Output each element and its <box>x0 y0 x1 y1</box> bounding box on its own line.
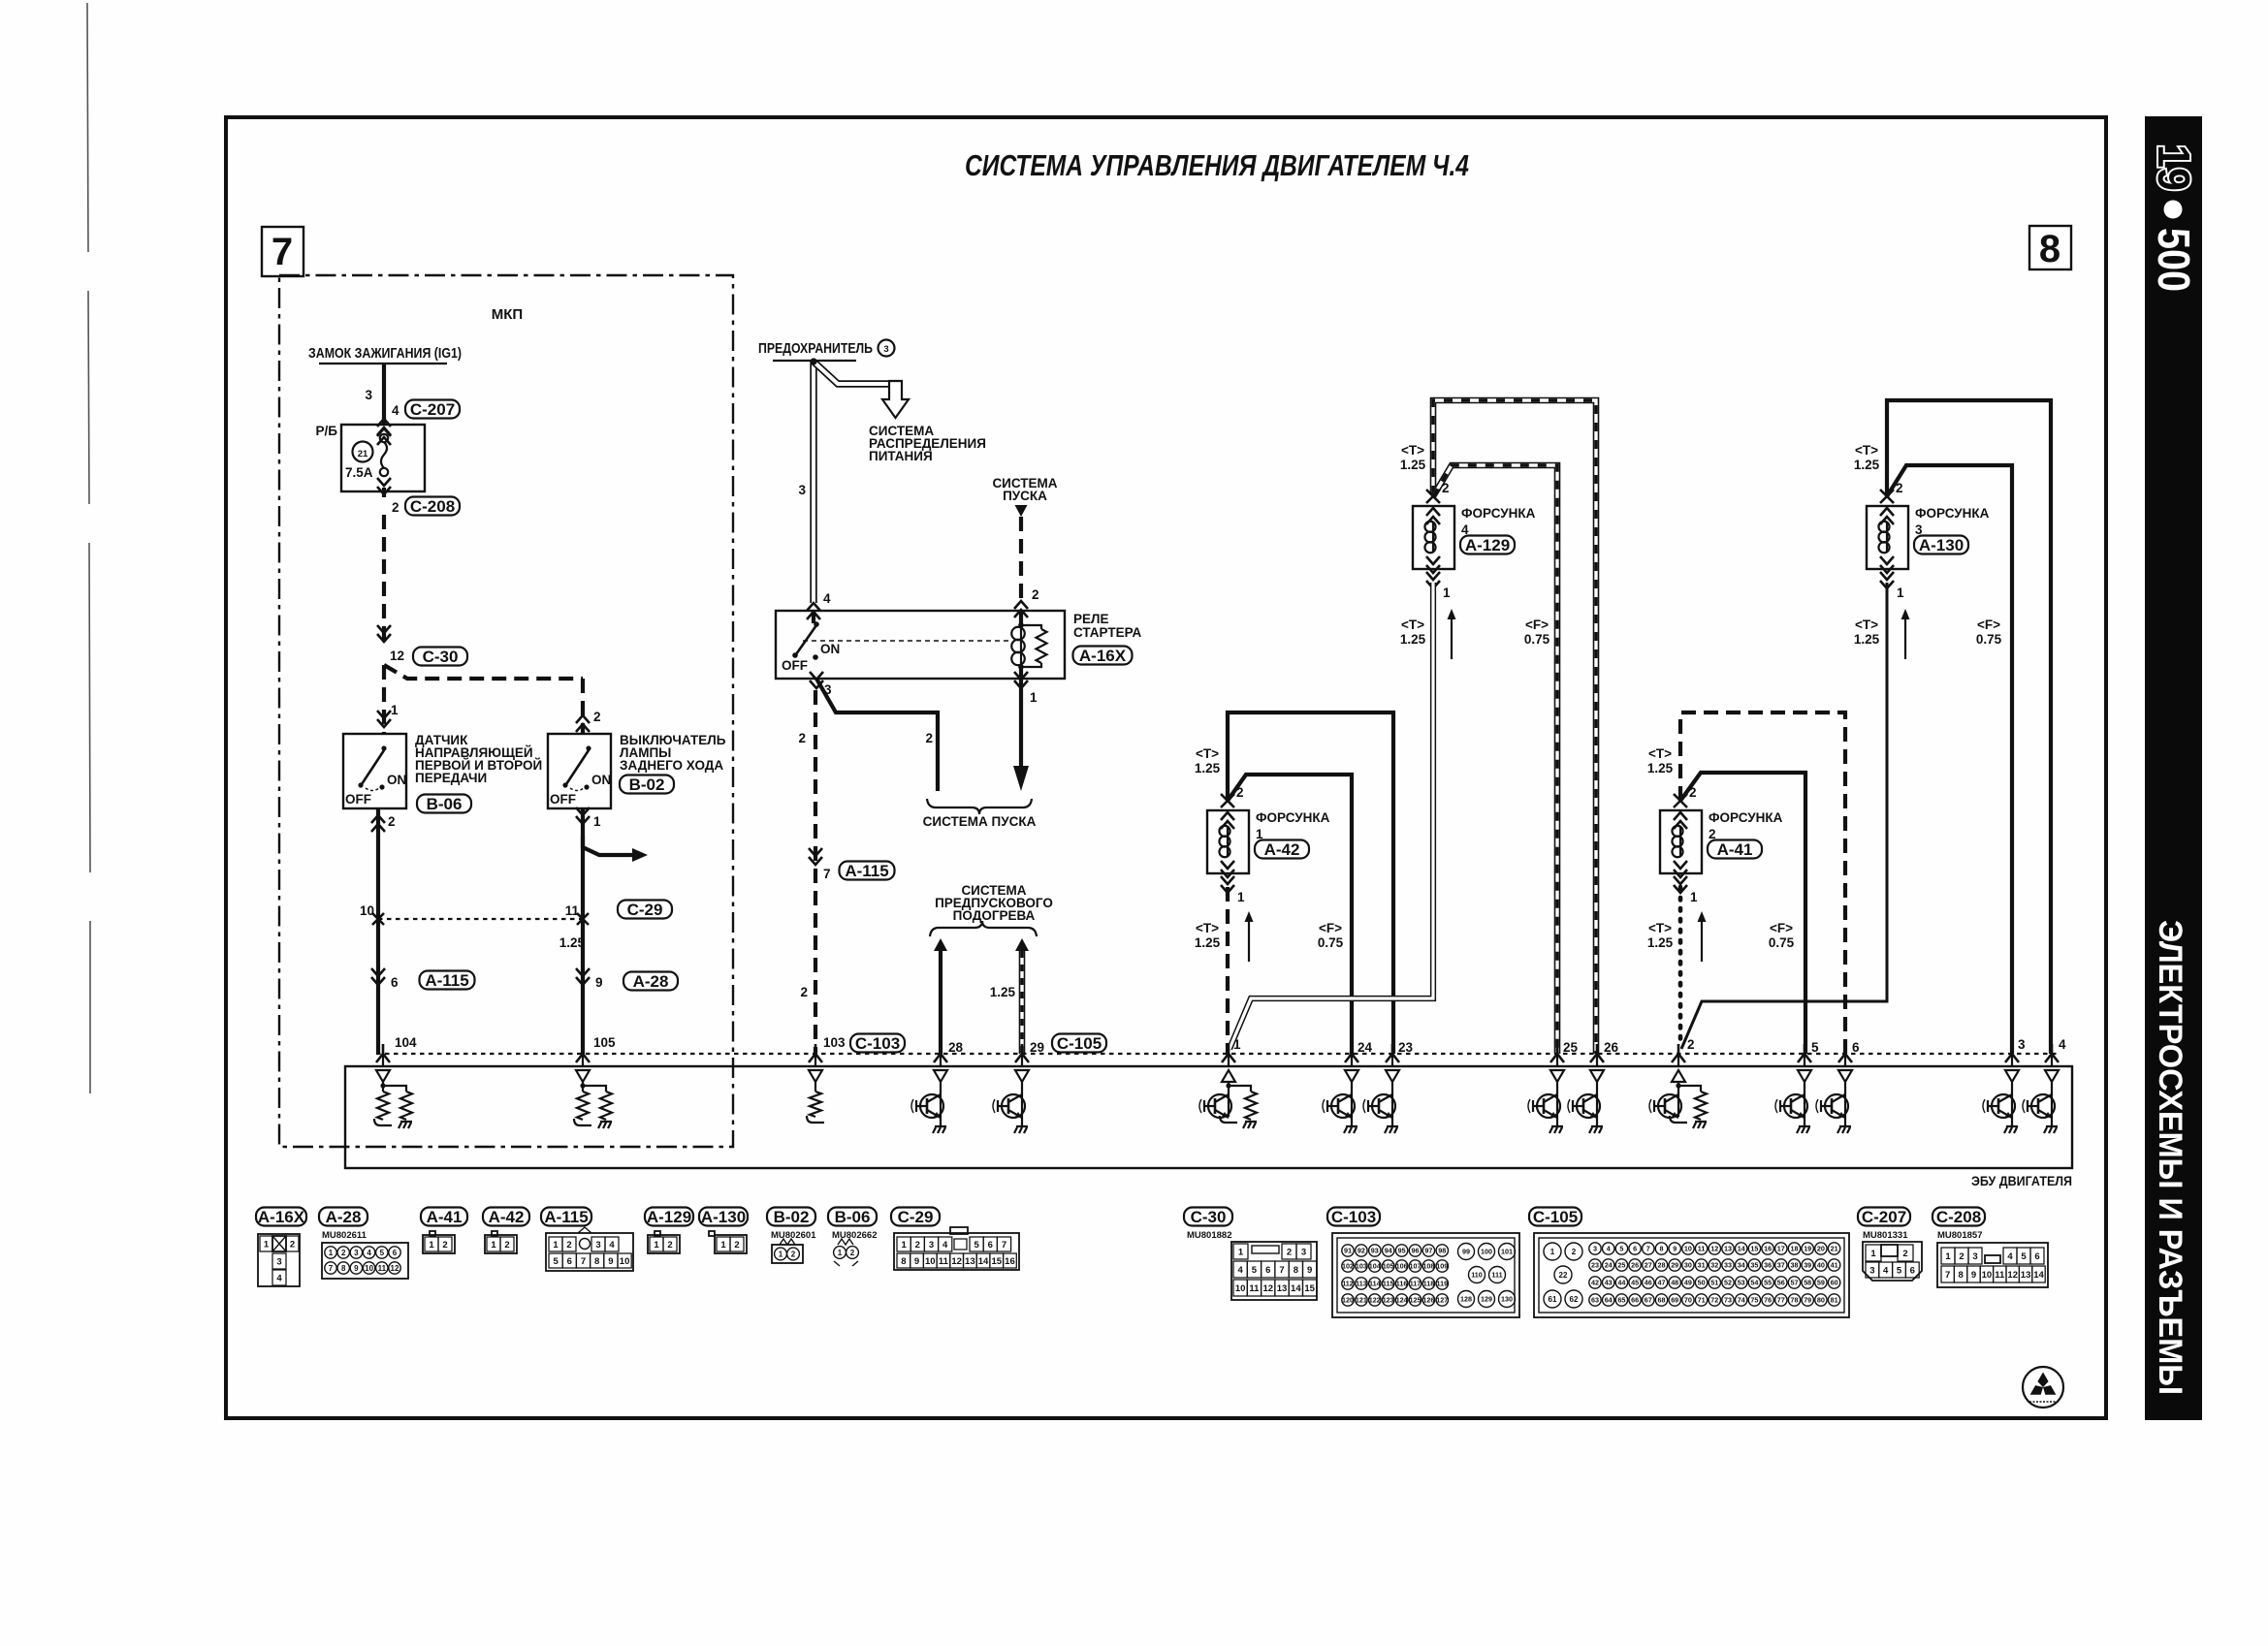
svg-text:C-105: C-105 <box>1057 1034 1102 1053</box>
svg-text:5: 5 <box>2021 1251 2027 1262</box>
svg-text:65: 65 <box>1617 1296 1625 1305</box>
svg-text:75: 75 <box>1750 1296 1758 1305</box>
svg-text:10: 10 <box>365 1264 373 1273</box>
svg-text:A-42: A-42 <box>1264 840 1300 859</box>
svg-text:C-103: C-103 <box>1331 1208 1376 1226</box>
svg-text:98: 98 <box>1438 1247 1446 1255</box>
svg-text:C-207: C-207 <box>410 400 455 419</box>
svg-text:МКП: МКП <box>492 306 523 323</box>
svg-text:43: 43 <box>1605 1279 1613 1287</box>
svg-text:A-115: A-115 <box>425 971 468 990</box>
svg-text:9: 9 <box>354 1264 359 1273</box>
svg-text:1: 1 <box>1233 1037 1241 1052</box>
svg-text:2: 2 <box>341 1249 346 1257</box>
svg-text:8: 8 <box>1958 1270 1963 1281</box>
svg-text:7: 7 <box>1646 1245 1650 1253</box>
svg-text:ЭБУ ДВИГАТЕЛЯ: ЭБУ ДВИГАТЕЛЯ <box>1971 1174 2072 1188</box>
svg-text:125: 125 <box>1410 1296 1421 1305</box>
svg-text:2: 2 <box>915 1240 920 1250</box>
svg-text:1.25: 1.25 <box>1400 632 1426 647</box>
svg-text:29: 29 <box>1030 1040 1044 1055</box>
svg-text:103: 103 <box>823 1035 846 1050</box>
svg-text:6: 6 <box>1910 1266 1915 1277</box>
svg-text:32: 32 <box>1710 1261 1718 1270</box>
svg-text:A-130: A-130 <box>701 1208 746 1226</box>
svg-text:64: 64 <box>1605 1296 1613 1305</box>
svg-text:4: 4 <box>2059 1037 2066 1052</box>
svg-text:29: 29 <box>1671 1261 1678 1270</box>
svg-text:7: 7 <box>581 1256 586 1267</box>
svg-text:21: 21 <box>358 449 368 459</box>
svg-text:ЗАДНЕГО ХОДА: ЗАДНЕГО ХОДА <box>620 758 723 773</box>
svg-text:A-115: A-115 <box>845 862 888 880</box>
svg-text:12: 12 <box>1710 1245 1718 1253</box>
svg-text:25: 25 <box>1617 1261 1625 1270</box>
svg-text:123: 123 <box>1383 1296 1394 1305</box>
svg-text:ON: ON <box>387 773 406 787</box>
svg-text:117: 117 <box>1410 1280 1421 1288</box>
svg-text:49: 49 <box>1684 1279 1692 1287</box>
svg-text:81: 81 <box>1831 1296 1838 1305</box>
svg-text:109: 109 <box>1436 1262 1448 1271</box>
svg-text:6: 6 <box>393 1249 398 1257</box>
svg-text:15: 15 <box>1304 1283 1315 1294</box>
svg-text:34: 34 <box>1738 1261 1745 1270</box>
svg-text:C-208: C-208 <box>410 497 455 516</box>
svg-text:7: 7 <box>823 867 831 881</box>
svg-text:2: 2 <box>1689 785 1697 800</box>
svg-text:6: 6 <box>1265 1265 1270 1276</box>
svg-text:1: 1 <box>720 1240 726 1250</box>
svg-text:62: 62 <box>1570 1295 1579 1304</box>
svg-text:4: 4 <box>942 1240 948 1250</box>
svg-text:27: 27 <box>1645 1261 1652 1270</box>
svg-text:ON: ON <box>591 773 611 787</box>
svg-text:7: 7 <box>1945 1270 1950 1281</box>
svg-text:1: 1 <box>779 1250 783 1258</box>
svg-text:500: 500 <box>2149 228 2199 292</box>
svg-text:<F>: <F> <box>1977 617 2000 632</box>
svg-text:<T>: <T> <box>1196 746 1219 761</box>
svg-text:52: 52 <box>1724 1279 1732 1287</box>
svg-text:7: 7 <box>329 1264 334 1273</box>
svg-text:2: 2 <box>850 1249 855 1257</box>
svg-text:14: 14 <box>1291 1283 1301 1294</box>
svg-text:B-02: B-02 <box>774 1208 810 1226</box>
svg-text:9: 9 <box>608 1256 613 1267</box>
svg-text:11: 11 <box>1249 1283 1260 1294</box>
svg-text:120: 120 <box>1342 1296 1354 1305</box>
svg-text:10: 10 <box>1684 1245 1692 1253</box>
svg-text:1: 1 <box>838 1249 843 1257</box>
svg-text:113: 113 <box>1356 1280 1367 1288</box>
svg-text:<T>: <T> <box>1648 921 1672 935</box>
svg-text:B-06: B-06 <box>427 795 463 813</box>
svg-text:13: 13 <box>1724 1245 1732 1253</box>
svg-text:1.25: 1.25 <box>1854 632 1880 647</box>
svg-text:107: 107 <box>1410 1262 1421 1271</box>
svg-text:24: 24 <box>1358 1040 1373 1055</box>
svg-text:100: 100 <box>1481 1248 1492 1256</box>
svg-text:33: 33 <box>1724 1261 1732 1270</box>
svg-text:1: 1 <box>1870 1249 1876 1259</box>
svg-text:24: 24 <box>1605 1261 1613 1270</box>
svg-text:СИСТЕМА ПУСКА: СИСТЕМА ПУСКА <box>923 814 1037 829</box>
svg-text:71: 71 <box>1698 1296 1706 1305</box>
svg-text:B-02: B-02 <box>629 776 665 794</box>
svg-text:76: 76 <box>1764 1296 1772 1305</box>
svg-text:2: 2 <box>798 731 806 745</box>
svg-text:10: 10 <box>360 903 374 918</box>
svg-text:119: 119 <box>1436 1280 1448 1288</box>
svg-text:104: 104 <box>395 1035 417 1050</box>
svg-text:7: 7 <box>1002 1240 1006 1250</box>
svg-text:5: 5 <box>974 1240 979 1250</box>
svg-text:28: 28 <box>948 1040 964 1055</box>
svg-text:23: 23 <box>1591 1261 1599 1270</box>
svg-text:<T>: <T> <box>1196 921 1219 935</box>
svg-text:106: 106 <box>1396 1262 1408 1271</box>
svg-text:68: 68 <box>1658 1296 1666 1305</box>
svg-text:C-207: C-207 <box>1862 1208 1906 1226</box>
svg-text:1: 1 <box>391 703 399 717</box>
svg-text:1: 1 <box>901 1240 907 1250</box>
svg-text:60: 60 <box>1831 1279 1838 1287</box>
svg-text:10: 10 <box>1235 1283 1246 1294</box>
svg-text:35: 35 <box>1750 1261 1758 1270</box>
svg-text:A-16X: A-16X <box>1079 647 1127 665</box>
svg-text:110: 110 <box>1471 1271 1483 1280</box>
svg-text:72: 72 <box>1710 1296 1718 1305</box>
svg-text:13: 13 <box>2021 1270 2031 1281</box>
svg-text:54: 54 <box>1750 1279 1758 1287</box>
svg-text:5: 5 <box>1811 1040 1819 1055</box>
svg-text:2: 2 <box>1442 481 1450 495</box>
svg-text:59: 59 <box>1817 1279 1825 1287</box>
svg-text:19: 19 <box>2149 144 2199 191</box>
svg-text:111: 111 <box>1491 1271 1502 1280</box>
svg-text:C-105: C-105 <box>1533 1208 1578 1226</box>
svg-text:4: 4 <box>823 591 831 606</box>
svg-text:102: 102 <box>1342 1262 1354 1271</box>
svg-text:MU801857: MU801857 <box>1937 1230 1982 1241</box>
svg-text:2: 2 <box>1032 587 1039 602</box>
svg-text:50: 50 <box>1698 1279 1706 1287</box>
svg-text:4: 4 <box>2007 1251 2013 1262</box>
svg-text:13: 13 <box>1277 1283 1288 1294</box>
svg-text:2: 2 <box>667 1240 672 1250</box>
svg-text:26: 26 <box>1631 1261 1639 1270</box>
svg-text:104: 104 <box>1369 1262 1381 1271</box>
svg-text:2: 2 <box>1287 1248 1292 1258</box>
svg-text:6: 6 <box>1852 1040 1860 1055</box>
svg-text:ФОРСУНКА: ФОРСУНКА <box>1461 506 1536 521</box>
svg-text:126: 126 <box>1422 1296 1434 1305</box>
svg-text:12: 12 <box>2007 1270 2018 1281</box>
svg-text:1: 1 <box>1550 1248 1555 1256</box>
svg-text:130: 130 <box>1501 1295 1513 1304</box>
svg-text:93: 93 <box>1371 1247 1379 1255</box>
svg-text:6: 6 <box>567 1256 572 1267</box>
svg-text:14: 14 <box>2033 1270 2044 1281</box>
svg-text:2: 2 <box>1902 1249 1907 1259</box>
svg-text:63: 63 <box>1591 1296 1599 1305</box>
svg-text:16: 16 <box>1764 1245 1772 1253</box>
svg-text:1: 1 <box>1945 1251 1951 1262</box>
svg-text:8: 8 <box>341 1264 346 1273</box>
svg-text:4: 4 <box>1238 1265 1244 1276</box>
svg-text:4: 4 <box>1607 1245 1611 1253</box>
svg-text:1: 1 <box>1897 586 1904 600</box>
svg-text:B-06: B-06 <box>835 1208 871 1226</box>
svg-text:26: 26 <box>1604 1040 1619 1055</box>
svg-text:127: 127 <box>1436 1296 1448 1305</box>
svg-text:OFF: OFF <box>550 792 576 807</box>
svg-text:67: 67 <box>1645 1296 1652 1305</box>
svg-text:73: 73 <box>1724 1296 1732 1305</box>
svg-text:31: 31 <box>1698 1261 1706 1270</box>
svg-text:23: 23 <box>1398 1040 1414 1055</box>
svg-text:2: 2 <box>1236 785 1244 800</box>
svg-text:91: 91 <box>1344 1247 1352 1255</box>
svg-text:3: 3 <box>1972 1251 1977 1262</box>
svg-text:A-129: A-129 <box>647 1208 691 1226</box>
svg-text:1.25: 1.25 <box>1195 935 1221 950</box>
svg-text:7: 7 <box>272 231 293 273</box>
svg-text:48: 48 <box>1671 1279 1678 1287</box>
svg-text:2: 2 <box>1896 481 1903 495</box>
svg-text:ПИТАНИЯ: ПИТАНИЯ <box>869 449 933 463</box>
svg-text:1: 1 <box>429 1240 434 1250</box>
svg-text:2: 2 <box>734 1240 739 1250</box>
svg-text:42: 42 <box>1591 1279 1599 1287</box>
svg-text:3: 3 <box>1593 1245 1597 1253</box>
svg-text:45: 45 <box>1631 1279 1639 1287</box>
svg-text:14: 14 <box>978 1256 989 1267</box>
svg-text:1.25: 1.25 <box>1400 458 1426 472</box>
svg-text:MU802611: MU802611 <box>322 1230 367 1241</box>
svg-text:30: 30 <box>1684 1261 1692 1270</box>
svg-text:9: 9 <box>1673 1245 1677 1253</box>
svg-text:ЭЛЕКТРОСХЕМЫ И РАЗЪЕМЫ: ЭЛЕКТРОСХЕМЫ И РАЗЪЕМЫ <box>2152 920 2188 1395</box>
svg-text:ФОРСУНКА: ФОРСУНКА <box>1915 506 1990 521</box>
svg-text:12: 12 <box>390 649 404 663</box>
svg-text:A-129: A-129 <box>1465 536 1510 554</box>
svg-text:1: 1 <box>1443 586 1451 600</box>
svg-text:5: 5 <box>380 1249 385 1257</box>
svg-text:3: 3 <box>883 344 888 355</box>
svg-text:ФОРСУНКА: ФОРСУНКА <box>1709 810 1783 825</box>
svg-text:38: 38 <box>1791 1261 1799 1270</box>
svg-text:3: 3 <box>929 1240 934 1250</box>
svg-text:79: 79 <box>1804 1296 1811 1305</box>
svg-text:3: 3 <box>354 1249 359 1257</box>
svg-text:80: 80 <box>1817 1296 1825 1305</box>
svg-text:51: 51 <box>1710 1279 1718 1287</box>
svg-text:3: 3 <box>798 483 806 497</box>
svg-text:95: 95 <box>1398 1247 1406 1255</box>
svg-text:A-16X: A-16X <box>258 1208 305 1226</box>
svg-text:57: 57 <box>1791 1279 1799 1287</box>
svg-text:2: 2 <box>800 985 808 999</box>
svg-text:<F>: <F> <box>1319 921 1342 935</box>
svg-text:C-29: C-29 <box>898 1208 934 1226</box>
svg-text:СИСТЕМА УПРАВЛЕНИЯ ДВИГАТЕЛЕМ: СИСТЕМА УПРАВЛЕНИЯ ДВИГАТЕЛЕМ Ч.4 <box>965 148 1469 182</box>
svg-text:A-28: A-28 <box>326 1208 362 1226</box>
svg-text:61: 61 <box>1549 1295 1557 1304</box>
svg-text:28: 28 <box>1658 1261 1666 1270</box>
svg-text:11: 11 <box>939 1256 949 1267</box>
svg-text:A-41: A-41 <box>1717 840 1753 859</box>
svg-text:0.75: 0.75 <box>1524 632 1550 647</box>
svg-text:СТАРТЕРА: СТАРТЕРА <box>1073 625 1141 640</box>
svg-text:6: 6 <box>988 1240 993 1250</box>
svg-text:ФОРСУНКА: ФОРСУНКА <box>1256 810 1330 825</box>
svg-text:10: 10 <box>925 1256 936 1267</box>
svg-text:37: 37 <box>1777 1261 1785 1270</box>
svg-text:6: 6 <box>2034 1251 2039 1262</box>
svg-text:MU802601: MU802601 <box>771 1230 816 1241</box>
svg-text:116: 116 <box>1396 1280 1408 1288</box>
svg-text:44: 44 <box>1617 1279 1625 1287</box>
svg-text:ЗАМОК ЗАЖИГАНИЯ (IG1): ЗАМОК ЗАЖИГАНИЯ (IG1) <box>308 345 462 362</box>
svg-text:46: 46 <box>1645 1279 1652 1287</box>
svg-text:<T>: <T> <box>1855 443 1878 458</box>
svg-text:<F>: <F> <box>1770 921 1793 935</box>
svg-text:OFF: OFF <box>345 792 371 807</box>
svg-text:77: 77 <box>1777 1296 1785 1305</box>
svg-text:22: 22 <box>1559 1271 1568 1280</box>
svg-text:ПУСКА: ПУСКА <box>1003 489 1047 503</box>
svg-text:96: 96 <box>1412 1247 1420 1255</box>
svg-text:2: 2 <box>392 500 399 515</box>
svg-text:ПЕРЕДАЧИ: ПЕРЕДАЧИ <box>415 771 487 785</box>
svg-text:<T>: <T> <box>1648 746 1672 761</box>
svg-text:128: 128 <box>1460 1295 1472 1304</box>
svg-text:Р/Б: Р/Б <box>316 424 338 438</box>
svg-text:1.25: 1.25 <box>990 985 1016 999</box>
svg-text:40: 40 <box>1817 1261 1825 1270</box>
svg-text:2: 2 <box>388 814 396 829</box>
svg-text:114: 114 <box>1369 1280 1381 1288</box>
svg-text:2: 2 <box>1687 1037 1695 1052</box>
svg-text:OFF: OFF <box>782 658 808 673</box>
svg-text:105: 105 <box>593 1035 616 1050</box>
svg-text:ПОДОГРЕВА: ПОДОГРЕВА <box>953 908 1036 923</box>
svg-text:4: 4 <box>276 1274 282 1284</box>
svg-text:9: 9 <box>1307 1265 1312 1276</box>
svg-text:2: 2 <box>925 731 933 745</box>
svg-text:14: 14 <box>1738 1245 1745 1253</box>
svg-text:12: 12 <box>391 1264 399 1273</box>
svg-text:58: 58 <box>1804 1279 1811 1287</box>
svg-text:118: 118 <box>1423 1280 1435 1288</box>
svg-text:РЕЛЕ: РЕЛЕ <box>1073 612 1109 626</box>
svg-text:8: 8 <box>594 1256 599 1267</box>
svg-text:12: 12 <box>951 1256 962 1267</box>
svg-text:1: 1 <box>264 1240 270 1250</box>
svg-text:115: 115 <box>1383 1280 1394 1288</box>
svg-text:2: 2 <box>442 1240 447 1250</box>
svg-text:2: 2 <box>1572 1248 1577 1256</box>
svg-text:C-30: C-30 <box>423 648 459 666</box>
svg-text:10: 10 <box>1982 1270 1993 1281</box>
svg-text:1.25: 1.25 <box>1195 761 1221 776</box>
svg-text:97: 97 <box>1424 1247 1432 1255</box>
svg-text:11: 11 <box>378 1264 387 1273</box>
svg-text:1: 1 <box>1690 890 1698 904</box>
svg-text:0.75: 0.75 <box>1976 632 2002 647</box>
svg-text:8: 8 <box>901 1256 906 1267</box>
svg-text:70: 70 <box>1684 1296 1692 1305</box>
svg-text:36: 36 <box>1764 1261 1772 1270</box>
svg-text:17: 17 <box>1777 1245 1785 1253</box>
svg-text:A-130: A-130 <box>1919 536 1964 554</box>
svg-text:9: 9 <box>595 975 603 990</box>
svg-text:MU801331: MU801331 <box>1863 1230 1908 1241</box>
svg-text:2: 2 <box>791 1250 796 1258</box>
svg-text:1: 1 <box>553 1240 559 1250</box>
svg-text:55: 55 <box>1764 1279 1772 1287</box>
svg-text:<T>: <T> <box>1855 617 1878 632</box>
svg-text:8: 8 <box>1294 1265 1298 1276</box>
svg-text:41: 41 <box>1831 1261 1838 1270</box>
svg-text:12: 12 <box>1262 1283 1273 1294</box>
svg-text:20: 20 <box>1817 1245 1825 1253</box>
svg-text:124: 124 <box>1396 1296 1408 1305</box>
svg-text:1: 1 <box>1237 890 1245 904</box>
svg-text:121: 121 <box>1356 1296 1367 1305</box>
svg-text:4: 4 <box>367 1249 371 1257</box>
svg-text:6: 6 <box>391 975 399 990</box>
svg-text:108: 108 <box>1422 1262 1434 1271</box>
svg-text:101: 101 <box>1501 1248 1513 1256</box>
svg-text:3: 3 <box>2018 1037 2026 1052</box>
svg-text:1: 1 <box>1238 1248 1244 1258</box>
svg-text:94: 94 <box>1385 1247 1392 1255</box>
svg-text:5: 5 <box>1897 1266 1902 1277</box>
svg-text:5: 5 <box>1619 1245 1623 1253</box>
svg-text:C-30: C-30 <box>1191 1208 1227 1226</box>
svg-text:A-42: A-42 <box>489 1208 525 1226</box>
svg-text:A-41: A-41 <box>427 1208 463 1226</box>
svg-text:3: 3 <box>276 1257 281 1268</box>
svg-text:99: 99 <box>1462 1248 1470 1256</box>
svg-text:4: 4 <box>1883 1266 1889 1277</box>
svg-text:2: 2 <box>504 1240 509 1250</box>
svg-text:112: 112 <box>1342 1280 1354 1288</box>
svg-text:9: 9 <box>1971 1270 1976 1281</box>
svg-text:9: 9 <box>914 1256 919 1267</box>
svg-text:122: 122 <box>1369 1296 1381 1305</box>
svg-text:5: 5 <box>553 1256 559 1267</box>
svg-text:C-208: C-208 <box>1936 1208 1981 1226</box>
svg-text:16: 16 <box>1005 1256 1015 1267</box>
svg-text:5: 5 <box>1252 1265 1258 1276</box>
svg-text:A-28: A-28 <box>633 972 669 991</box>
svg-text:66: 66 <box>1631 1296 1639 1305</box>
svg-text:78: 78 <box>1791 1296 1799 1305</box>
svg-text:0.75: 0.75 <box>1769 935 1795 950</box>
svg-text:<F>: <F> <box>1525 617 1549 632</box>
svg-text:25: 25 <box>1563 1040 1579 1055</box>
svg-text:11: 11 <box>1698 1245 1706 1253</box>
svg-text:C-29: C-29 <box>627 901 663 919</box>
svg-text:2: 2 <box>593 710 601 724</box>
svg-text:2: 2 <box>566 1240 571 1250</box>
svg-text:105: 105 <box>1383 1262 1394 1271</box>
svg-text:0.75: 0.75 <box>1318 935 1344 950</box>
